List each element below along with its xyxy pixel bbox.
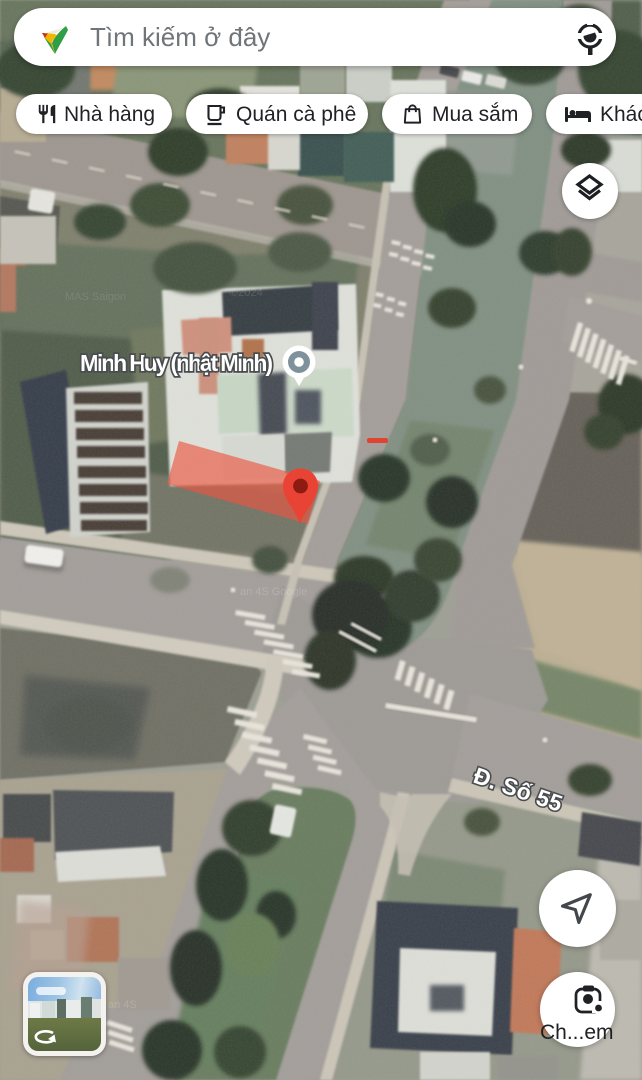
svg-text:an 4S: an 4S xyxy=(108,999,137,1011)
svg-text:Minh Huy (nhật Minh): Minh Huy (nhật Minh) xyxy=(80,350,273,376)
svg-text:MAS Saigon: MAS Saigon xyxy=(65,291,126,303)
svg-text:an 4S Google: an 4S Google xyxy=(240,586,307,598)
svg-text:©2024: ©2024 xyxy=(230,287,263,299)
